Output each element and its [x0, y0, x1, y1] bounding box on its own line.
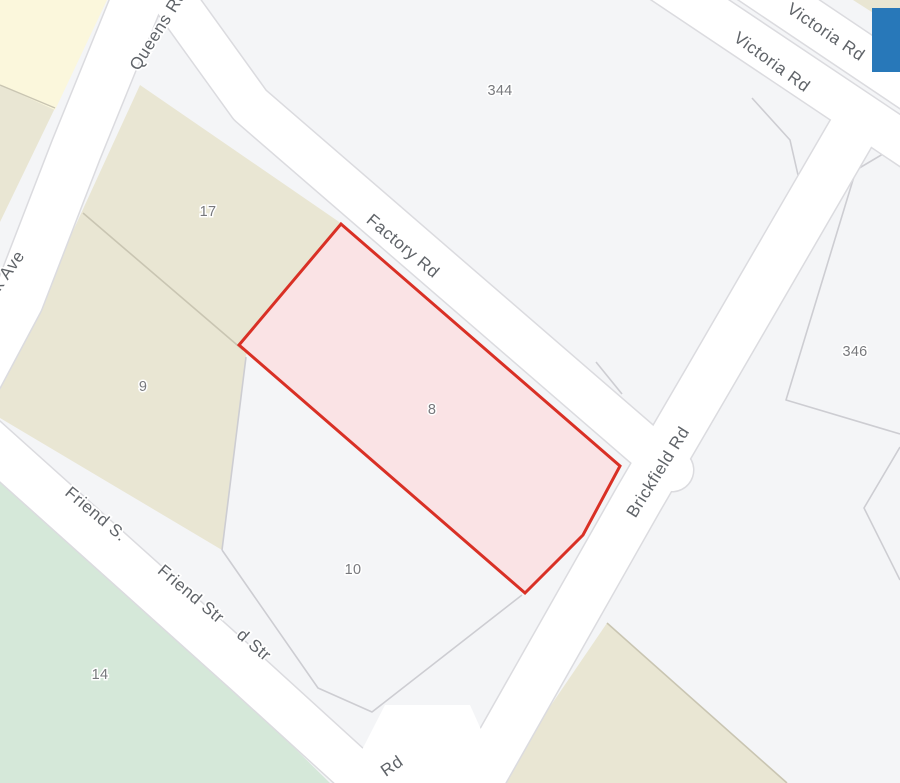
parcel-label-parcel-346: 346 — [842, 344, 867, 360]
parcel-label-parcel-8: 8 — [428, 402, 436, 418]
parcel-label-parcel-9: 9 — [139, 379, 147, 395]
map-canvas[interactable]: Queens RdPark AveVictoria RdVictoria RdF… — [0, 0, 900, 783]
map-svg: Queens RdPark AveVictoria RdVictoria RdF… — [0, 0, 900, 783]
parcel-label-parcel-344: 344 — [487, 83, 512, 99]
parcel-label-parcel-17: 17 — [200, 204, 217, 220]
parcel-label-parcel-14: 14 — [92, 667, 109, 683]
blue-ui-fragment — [872, 8, 900, 72]
parcel-label-parcel-10: 10 — [345, 562, 362, 578]
